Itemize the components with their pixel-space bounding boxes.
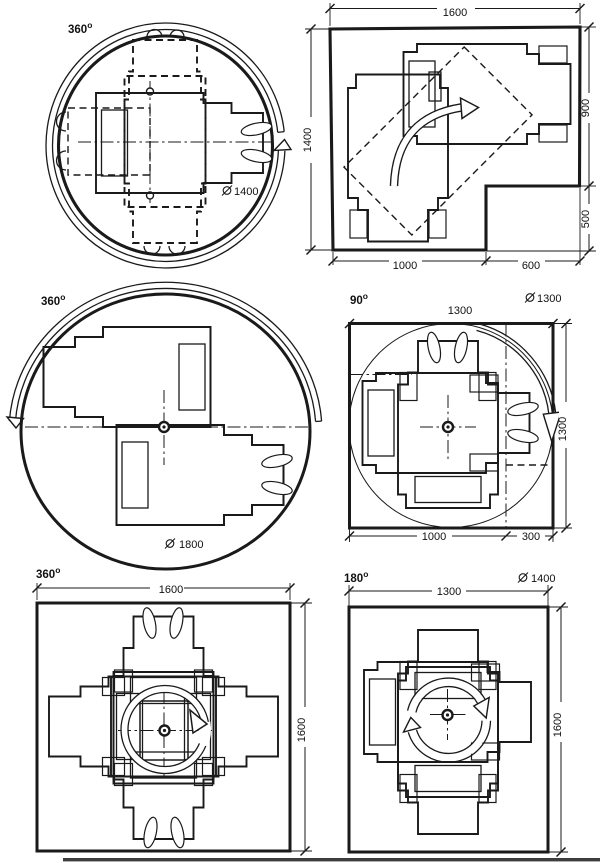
svg-text:500: 500 bbox=[580, 210, 592, 228]
svg-text:300: 300 bbox=[522, 531, 540, 543]
svg-text:600: 600 bbox=[522, 260, 540, 272]
svg-text:1300: 1300 bbox=[557, 417, 569, 441]
svg-text:1400: 1400 bbox=[531, 573, 555, 585]
svg-text:1300: 1300 bbox=[537, 293, 561, 305]
svg-text:1400: 1400 bbox=[234, 186, 258, 198]
svg-text:900: 900 bbox=[580, 99, 592, 117]
svg-text:1600: 1600 bbox=[552, 713, 564, 737]
svg-text:1300: 1300 bbox=[437, 586, 461, 598]
svg-text:1600: 1600 bbox=[443, 7, 467, 19]
svg-text:1300: 1300 bbox=[448, 305, 472, 317]
svg-text:1000: 1000 bbox=[422, 531, 446, 543]
svg-text:1600: 1600 bbox=[159, 584, 183, 596]
svg-text:1400: 1400 bbox=[302, 128, 314, 152]
svg-text:1800: 1800 bbox=[179, 539, 203, 551]
svg-text:1600: 1600 bbox=[296, 718, 308, 742]
svg-text:1000: 1000 bbox=[393, 260, 417, 272]
